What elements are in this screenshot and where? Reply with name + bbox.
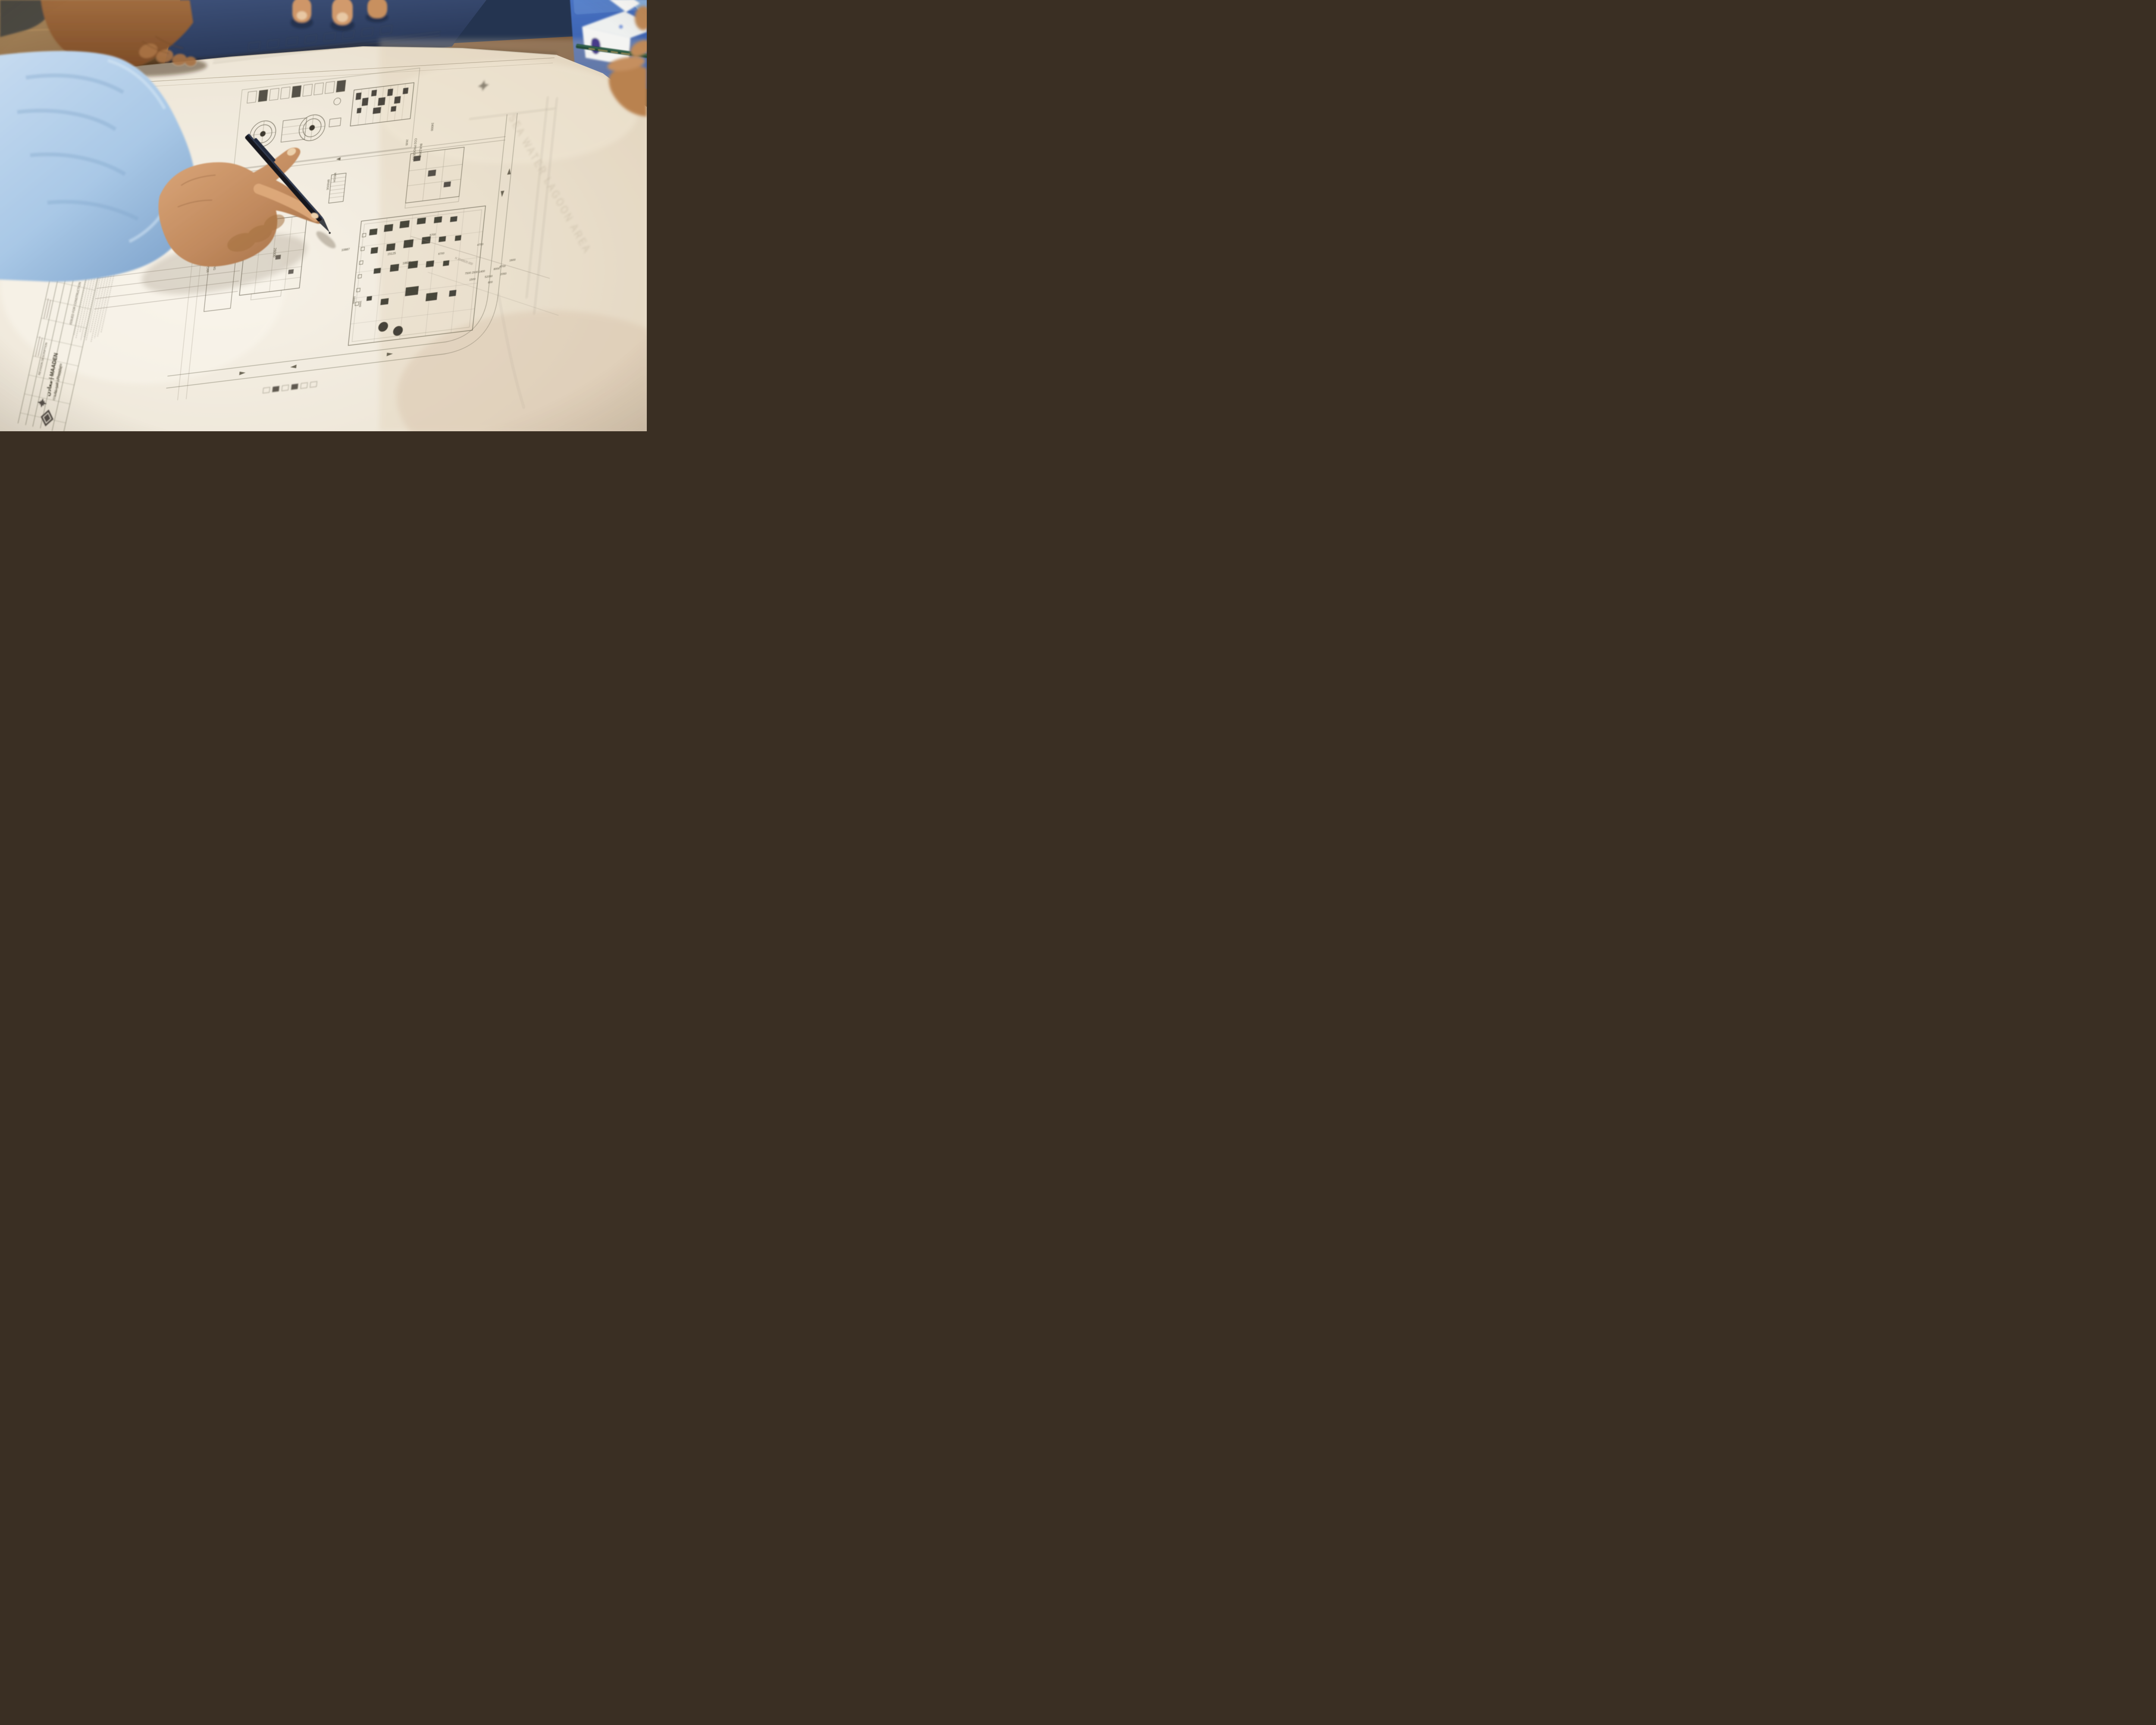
photo-stage: CO2 PROCESS BUILDING 24000 2635 WEIGH BR…: [0, 0, 647, 431]
photo-canvas: CO2 PROCESS BUILDING 24000 2635 WEIGH BR…: [0, 0, 647, 431]
vignette: [0, 0, 647, 431]
